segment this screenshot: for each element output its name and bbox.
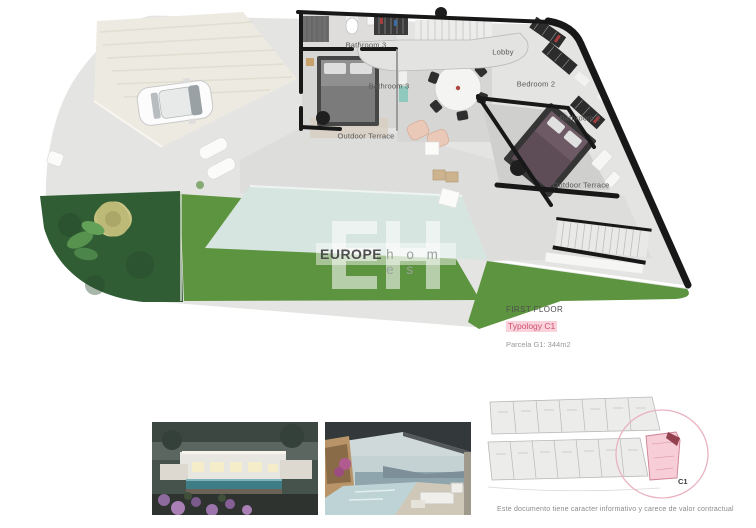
typology-badge: Typology C1: [506, 321, 557, 332]
unit-c1-label: C1: [678, 477, 688, 486]
toilet-icon: [346, 18, 358, 34]
photo-villa-dusk: [152, 422, 318, 515]
title-block: FIRST FLOOR Typology C1 Parcela G1: 344m…: [506, 305, 571, 349]
room-label-bathroom2: Bathroom 2: [560, 114, 601, 123]
floor-plan-page: Bathroom 3 Bathroom 3 Lobby Bedroom 2 Ba…: [0, 0, 756, 528]
logo-text-homes: h o m e s: [386, 247, 452, 277]
room-label-bathroom3-top: Bathroom 3: [346, 41, 387, 50]
side-table-icon: [316, 111, 330, 125]
parcel-info: Parcela G1: 344m2: [506, 340, 571, 349]
room-label-bedroom2: Bedroom 2: [517, 80, 556, 89]
room-label-outdoor-terrace-left: Outdoor Terrace: [337, 132, 394, 141]
europe-homes-logo: EUROPE h o m e s: [320, 221, 452, 289]
floor-plan-drawing: [0, 0, 756, 400]
floor-title: FIRST FLOOR: [506, 305, 571, 315]
shrub: [196, 181, 204, 189]
room-label-lobby: Lobby: [492, 48, 513, 57]
room-label-outdoor-terrace-right: Outdoor Terrace: [552, 181, 609, 190]
site-plan: C1: [480, 392, 725, 504]
disclaimer-text: Este documento tiene caracter informativ…: [497, 506, 734, 513]
logo-text-europe: EUROPE: [320, 246, 382, 262]
room-label-bathroom3-side: Bathroom 3: [369, 82, 410, 91]
photo-terrace-pool: [325, 422, 471, 515]
